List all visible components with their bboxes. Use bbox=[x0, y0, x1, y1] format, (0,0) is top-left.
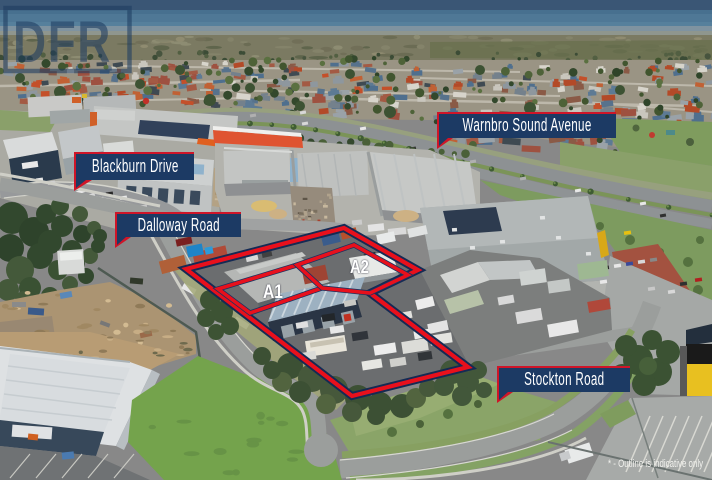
svg-text:DFR: DFR bbox=[13, 10, 112, 75]
